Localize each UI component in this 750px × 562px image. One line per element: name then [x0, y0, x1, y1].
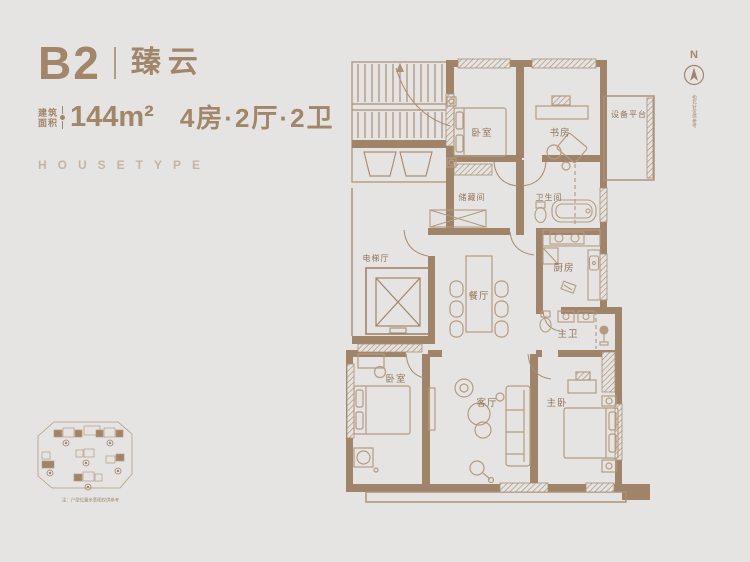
- room-label-bathroom: 卫生间: [536, 192, 563, 202]
- room-label-master-bath: 主卫: [557, 328, 578, 340]
- room-label-elevator-hall: 电梯厅: [363, 253, 390, 263]
- door-bedroom-top: [494, 162, 518, 186]
- siteplan-building-markers: [47, 440, 121, 490]
- furniture-bathroom: [535, 200, 596, 223]
- platform-edge-hatch: [647, 98, 653, 178]
- door-hall-kitchen: [510, 232, 534, 255]
- master-wardrobe: [602, 352, 615, 392]
- siteplan: [28, 416, 143, 503]
- window-master: [586, 483, 614, 492]
- room-label-kitchen: 厨房: [553, 262, 574, 274]
- room-label-storage: 储藏间: [459, 192, 486, 202]
- room-label-dining: 餐厅: [468, 290, 489, 302]
- siteplan-caption: 注：户型位置示意图仅供参考: [62, 497, 119, 503]
- window-bedroom-bottom: [347, 364, 354, 438]
- elevator: [366, 268, 430, 334]
- room-label-living: 客厅: [476, 397, 497, 409]
- siteplan-map: [28, 416, 143, 498]
- furniture-bedroom-bottom: [354, 354, 410, 472]
- window-living: [500, 483, 548, 492]
- door-unit-entry: [404, 230, 428, 256]
- room-label-equipment-platform: 设备平台: [611, 109, 647, 119]
- elevator-door-hatch: [358, 344, 422, 352]
- balcony-edge: [366, 492, 626, 502]
- siteplan-buildings: [42, 426, 124, 481]
- hall-closet: [430, 210, 486, 227]
- window-kitchen: [600, 254, 607, 300]
- storage-wardrobe: [454, 164, 492, 175]
- equipment-platform-outline: [604, 96, 654, 180]
- window-bedroom-top: [458, 59, 510, 68]
- room-label-study: 书房: [549, 127, 570, 139]
- room-label-master-bedroom: 主卧: [546, 397, 567, 409]
- stair-slab-wall: [352, 140, 448, 148]
- housetype-page: { "colors": { "background": "#e5e4e2", "…: [0, 0, 750, 562]
- room-label-bedroom-top: 卧室: [471, 127, 492, 139]
- door-bathroom: [522, 162, 546, 186]
- window-right-upper: [600, 188, 607, 222]
- room-label-bedroom-bottom: 卧室: [385, 373, 406, 385]
- furniture-living: [429, 379, 530, 483]
- window-study: [532, 59, 596, 68]
